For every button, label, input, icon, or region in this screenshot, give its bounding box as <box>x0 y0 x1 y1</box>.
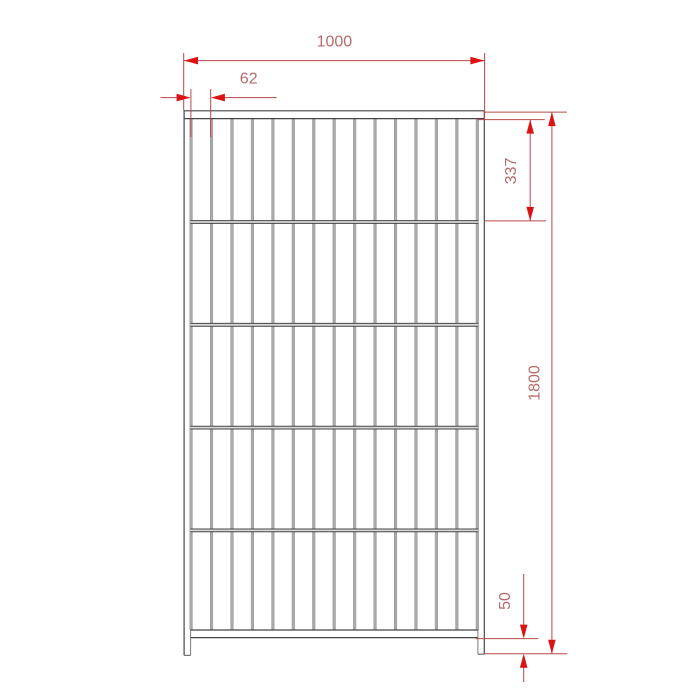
svg-text:62: 62 <box>240 70 258 87</box>
svg-text:1800: 1800 <box>526 365 543 401</box>
svg-text:50: 50 <box>497 592 514 610</box>
svg-text:337: 337 <box>503 158 520 185</box>
svg-text:1000: 1000 <box>317 33 353 50</box>
